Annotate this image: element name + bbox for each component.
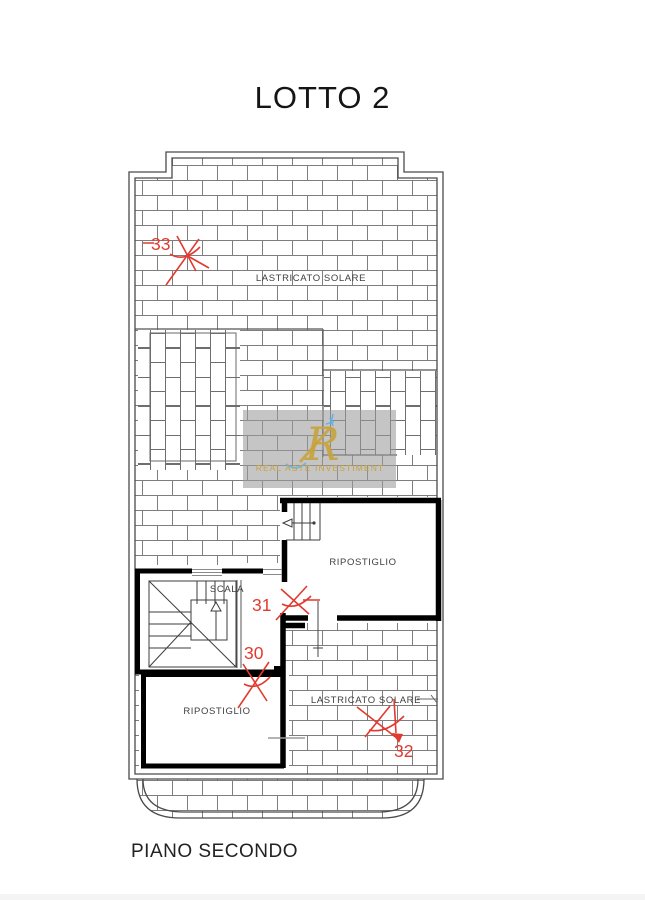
label-lastricato-solare-top: LASTRICATO SOLARE: [256, 273, 366, 284]
annotation-31: 31: [252, 595, 271, 615]
label-lastricato-solare-bottom: LASTRICATO SOLARE: [311, 695, 421, 706]
page-edge: [0, 894, 645, 900]
watermark: R REAL ASTE INVESTIMENT: [243, 410, 396, 488]
label-ripostiglio-top: RIPOSTIGLIO: [329, 557, 396, 568]
floor-plan: LASTRICATO SOLARE LASTRICATO SOLARE RIPO…: [0, 0, 645, 900]
annotation-33: 33: [151, 234, 170, 254]
plan-caption: PIANO SECONDO: [131, 841, 298, 863]
watermark-caption: REAL ASTE INVESTIMENT: [256, 463, 385, 473]
annotation-32: 32: [394, 741, 413, 761]
label-scala: SCALA: [210, 584, 244, 595]
label-ripostiglio-bottom: RIPOSTIGLIO: [183, 706, 250, 717]
annotation-30: 30: [244, 643, 264, 663]
